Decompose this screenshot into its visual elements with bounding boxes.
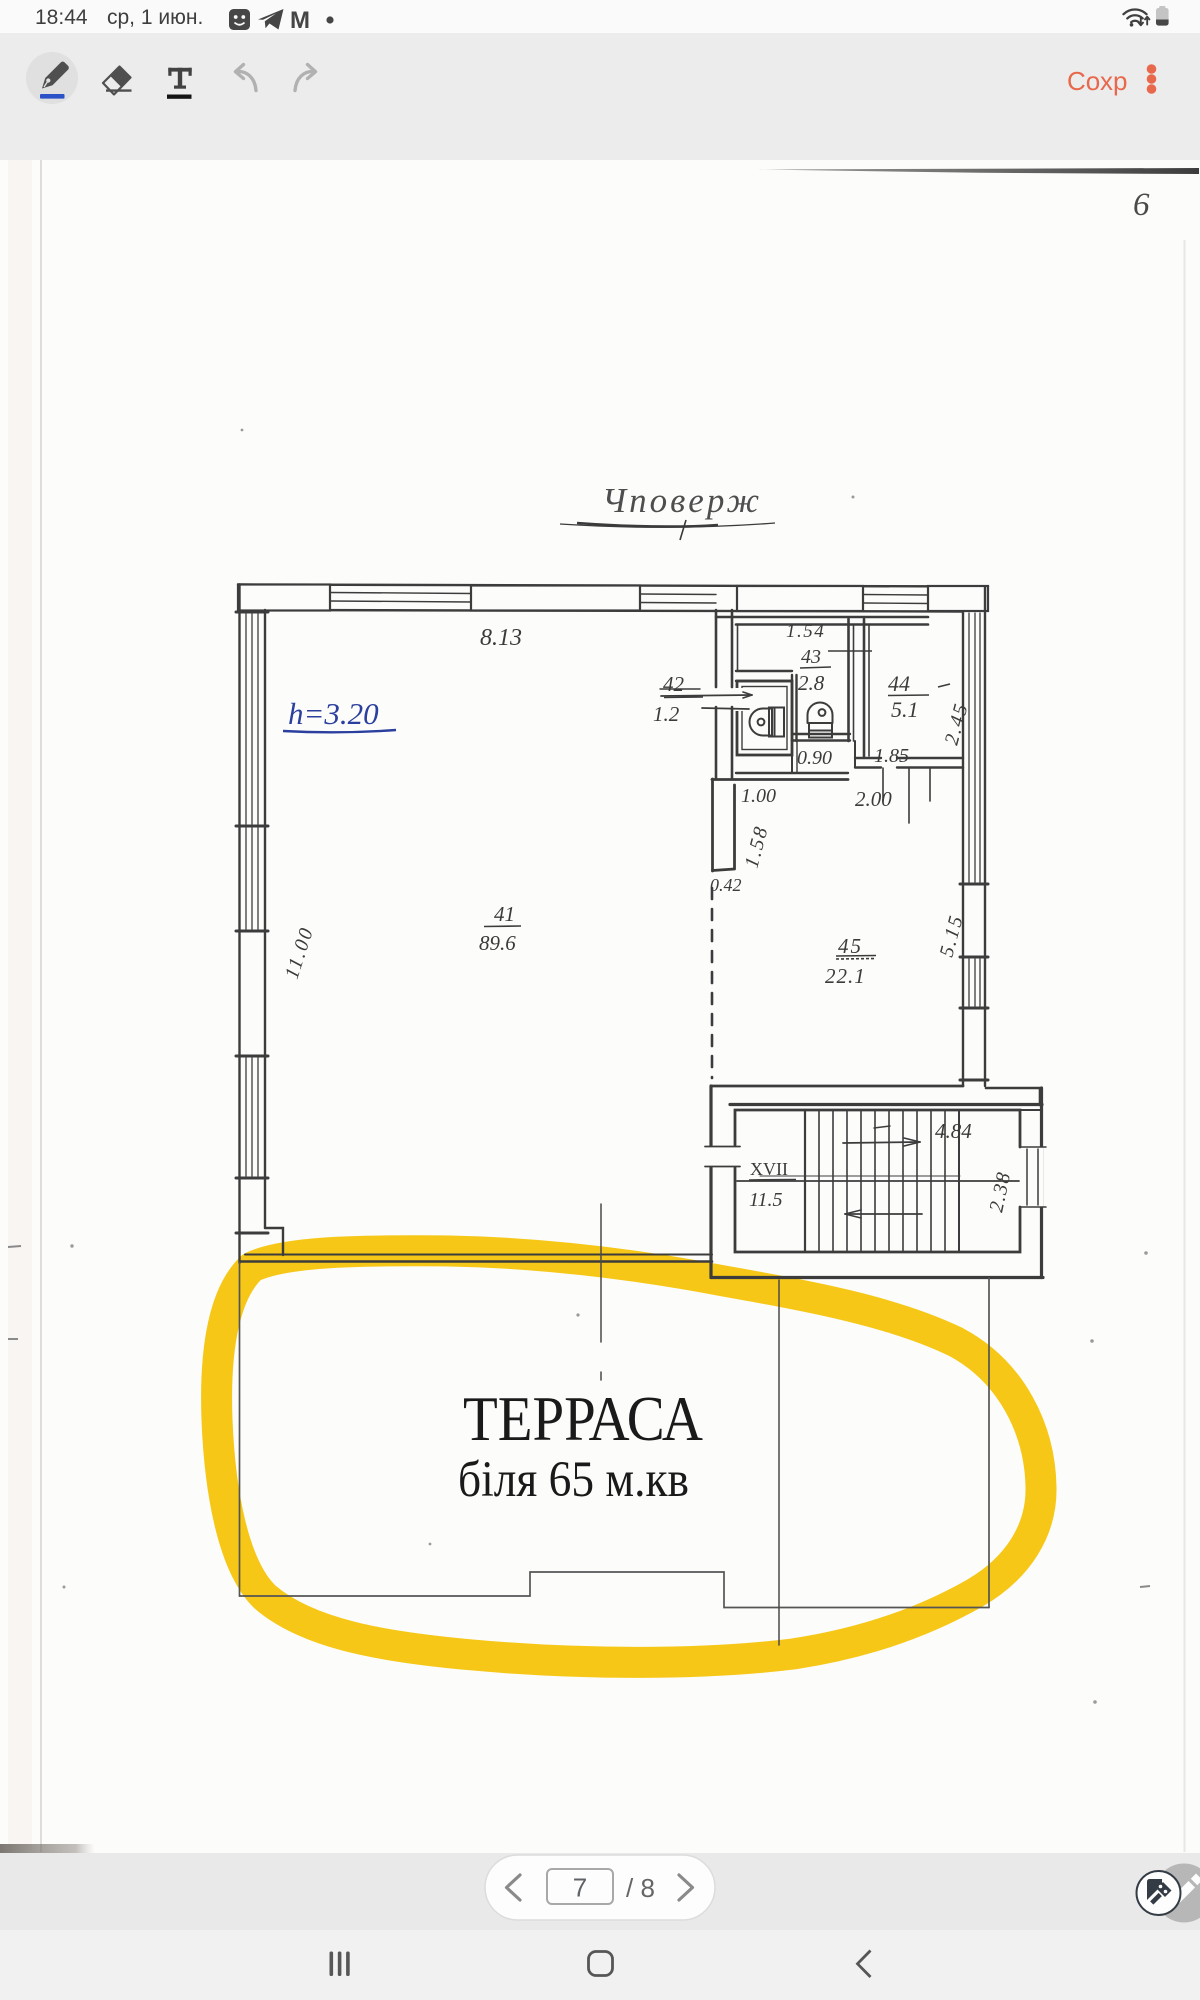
svg-text:44: 44 xyxy=(888,671,910,696)
svg-text:41: 41 xyxy=(494,902,515,926)
svg-text:1.00: 1.00 xyxy=(741,785,776,807)
svg-text:ср, 1 июн.: ср, 1 июн. xyxy=(107,6,203,29)
svg-text:43: 43 xyxy=(801,646,821,668)
svg-text:0.42: 0.42 xyxy=(710,875,742,895)
svg-text:8.13: 8.13 xyxy=(480,625,522,651)
svg-text:42: 42 xyxy=(663,672,685,696)
svg-text:2.8: 2.8 xyxy=(798,671,825,695)
svg-text:11.5: 11.5 xyxy=(749,1189,783,1211)
svg-text:біля 65 м.кв: біля 65 м.кв xyxy=(458,1452,689,1508)
svg-text:0.90: 0.90 xyxy=(797,747,832,769)
svg-text:22.1: 22.1 xyxy=(825,964,866,988)
svg-text:XVII: XVII xyxy=(750,1159,788,1179)
svg-text:ТЕРРАСА: ТЕРРАСА xyxy=(463,1383,703,1454)
svg-text:1.85: 1.85 xyxy=(874,745,909,767)
svg-text:5.1: 5.1 xyxy=(891,697,919,722)
svg-text:18:44: 18:44 xyxy=(35,6,88,29)
svg-text:1.2: 1.2 xyxy=(653,702,680,726)
svg-text:1.54: 1.54 xyxy=(786,621,825,642)
svg-text:89.6: 89.6 xyxy=(479,931,516,955)
svg-text:h=3.20: h=3.20 xyxy=(288,696,379,731)
svg-text:6: 6 xyxy=(1133,187,1150,223)
svg-text:/ 8: / 8 xyxy=(626,1873,655,1903)
svg-text:Сохр: Сохр xyxy=(1067,66,1127,96)
svg-text:45: 45 xyxy=(838,934,863,958)
svg-text:4.84: 4.84 xyxy=(935,1119,972,1143)
svg-text:Чповерж: Чповерж xyxy=(602,481,762,520)
svg-text:M: M xyxy=(290,7,310,33)
svg-text:7: 7 xyxy=(573,1873,587,1903)
svg-text:2.00: 2.00 xyxy=(855,787,892,811)
